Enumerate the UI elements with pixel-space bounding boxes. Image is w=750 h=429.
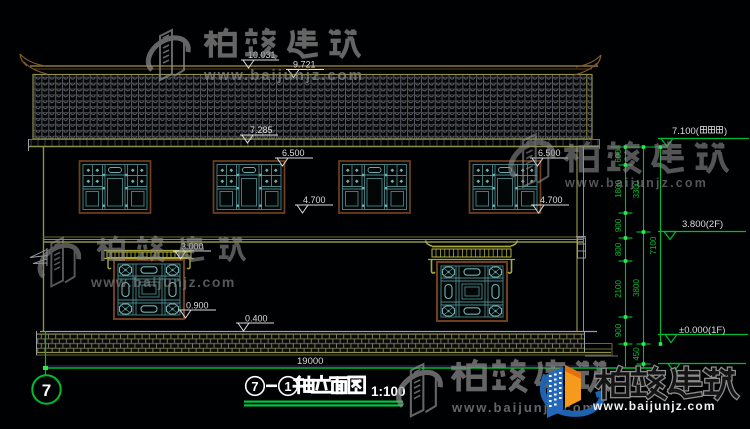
svg-text:19000: 19000	[297, 356, 323, 367]
svg-text:4.700: 4.700	[540, 195, 563, 205]
svg-text:www.baijunjz.com: www.baijunjz.com	[564, 176, 708, 190]
svg-text:900: 900	[614, 323, 623, 337]
svg-text:450: 450	[632, 347, 641, 361]
svg-text:±0.000(1F): ±0.000(1F)	[679, 325, 725, 336]
svg-text:4.700: 4.700	[303, 195, 326, 205]
svg-text:800: 800	[614, 242, 623, 256]
svg-text:7.285: 7.285	[250, 125, 273, 135]
svg-text:7.100(: 7.100(	[672, 126, 700, 137]
svg-text:www.baijunjz.com: www.baijunjz.com	[592, 399, 716, 413]
svg-text:0.400: 0.400	[245, 314, 268, 324]
svg-text:3.800(2F): 3.800(2F)	[682, 219, 723, 230]
svg-text:7: 7	[251, 379, 258, 394]
svg-text:0.900: 0.900	[186, 301, 209, 311]
svg-text:1: 1	[284, 379, 291, 394]
svg-text:7100: 7100	[649, 236, 658, 254]
svg-text:www.baijunjz.com: www.baijunjz.com	[90, 274, 236, 290]
svg-text:900: 900	[614, 218, 623, 232]
svg-text:3800: 3800	[632, 279, 641, 297]
svg-text:7: 7	[42, 381, 51, 400]
svg-text:2100: 2100	[614, 280, 623, 298]
svg-text:www.baijunjz.com: www.baijunjz.com	[203, 67, 364, 84]
svg-text:): )	[724, 126, 727, 137]
svg-text:6.500: 6.500	[282, 148, 305, 158]
